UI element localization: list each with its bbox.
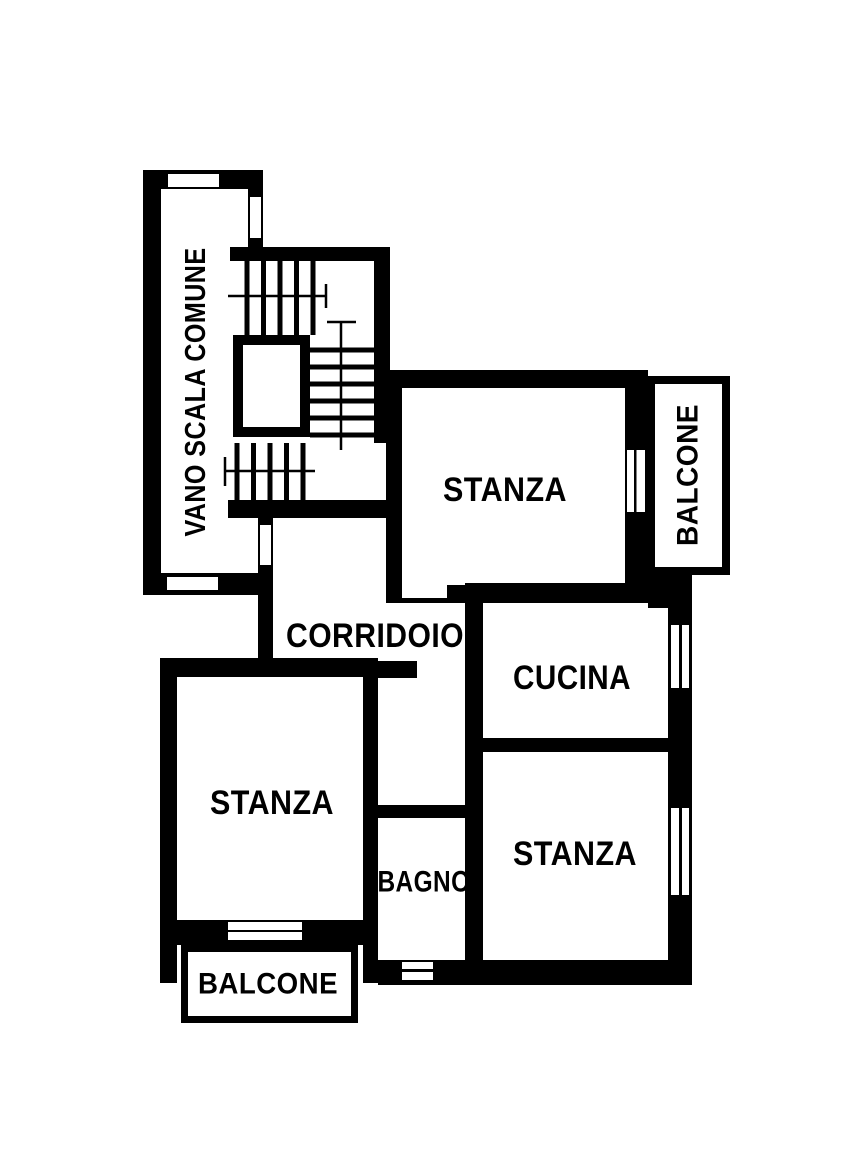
label-stanza-sud: STANZA (513, 835, 637, 873)
window-bagno-bottom-pane1 (402, 962, 433, 969)
wall-bagno-top (378, 805, 483, 818)
wall-cucina-left (465, 592, 483, 985)
label-cucina: CUCINA (513, 659, 631, 697)
window-bagno-bottom-pane2 (402, 972, 433, 980)
label-balcone-est: BALCONE (672, 404, 705, 546)
wall-stanza-nord-left (386, 370, 402, 603)
plan-background (0, 0, 865, 1160)
wall-stairblock-top (230, 247, 390, 261)
label-stanza-nord: STANZA (443, 471, 567, 509)
label-stanza-ovest: STANZA (210, 784, 334, 822)
wall-cucina-top (465, 583, 668, 600)
door-stanza-ovest-balcone-pane1 (228, 922, 302, 930)
door-stanza-nord (402, 585, 447, 598)
window-stairwell-bottom (167, 577, 218, 590)
window-stairwell-right (250, 197, 261, 238)
floor-plan: VANO SCALA COMUNE STANZA BALCONE CORRIDO… (0, 0, 865, 1160)
floor-plan-page: VANO SCALA COMUNE STANZA BALCONE CORRIDO… (0, 0, 865, 1160)
door-stanza-ovest-balcone-pane2 (228, 932, 302, 940)
wall-stairblock-bottom (228, 500, 386, 518)
wall-cucina-bottom (465, 738, 692, 752)
label-vano-scala-comune: VANO SCALA COMUNE (180, 248, 212, 537)
label-bagno: BAGNO (378, 866, 471, 899)
window-divider-stanza-sud (679, 808, 682, 895)
window-divider-stanza-nord (634, 450, 637, 512)
door-entrance (260, 525, 271, 565)
window-stairwell-top (168, 174, 219, 187)
wall-stanza-nord-top (386, 370, 648, 388)
wall-corridor-stub (365, 661, 417, 678)
label-balcone-sud: BALCONE (198, 968, 338, 1001)
window-divider-cucina (679, 625, 682, 688)
wall-stanza-ovest-top (160, 658, 378, 677)
wall-stairwell-left (143, 170, 161, 595)
stair-core-inner (243, 345, 300, 427)
label-corridoio: CORRIDOIO (286, 617, 464, 655)
